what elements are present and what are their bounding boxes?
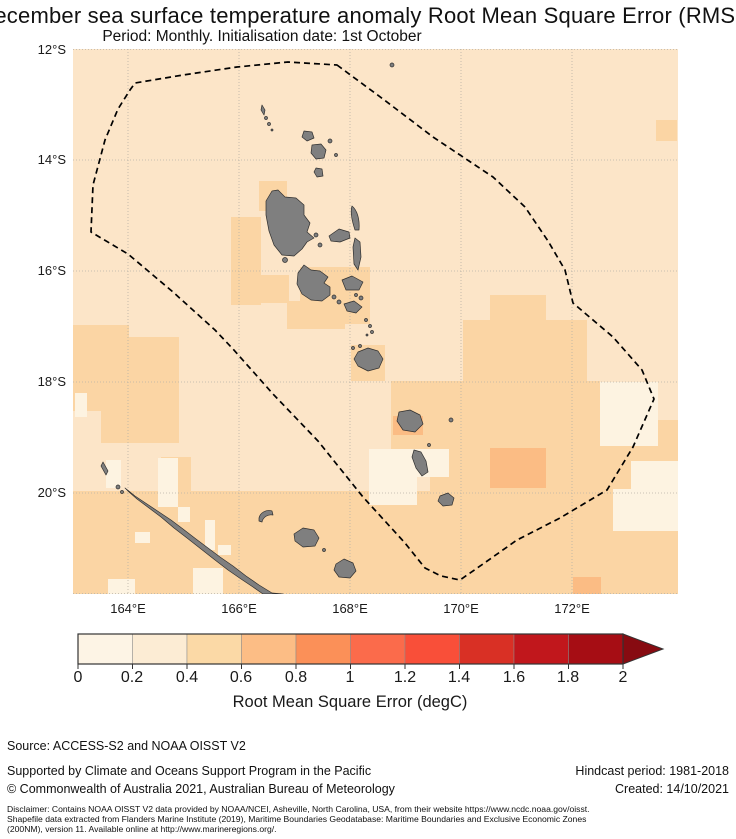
map-canvas — [73, 49, 678, 594]
colorbar-seg-8 — [460, 634, 515, 664]
cb-tick-12: 1.2 — [385, 669, 425, 687]
island-dot — [359, 345, 362, 348]
colorbar-seg-6 — [351, 634, 406, 664]
cb-tick-14: 1.4 — [439, 669, 479, 687]
figure-root: { "title": { "line1": "December sea surf… — [0, 0, 736, 839]
disclaimer-line-2: Shapefile data extracted from Flanders M… — [7, 814, 590, 824]
copyright-line: © Commonwealth of Australia 2021, Austra… — [7, 782, 395, 796]
lat-tick-16s: 16°S — [0, 263, 66, 279]
disclaimer-line-3: (200NM), version 11. Available online at… — [7, 824, 590, 834]
cb-tick-02: 0.2 — [112, 669, 152, 687]
colorbar-seg-10 — [569, 634, 624, 664]
disclaimer-text: Disclaimer: Contains NOAA OISST V2 data … — [7, 804, 590, 834]
lon-tick-168e: 168°E — [320, 601, 380, 616]
lat-tick-18s: 18°S — [0, 374, 66, 390]
colorbar-seg-1 — [78, 634, 133, 664]
island-dot — [371, 331, 374, 334]
island-dot — [265, 117, 268, 120]
cb-tick-1: 1 — [330, 669, 370, 687]
cb-tick-16: 1.6 — [494, 669, 534, 687]
colorbar-segments — [78, 634, 623, 664]
colorbar-seg-5 — [296, 634, 351, 664]
colorbar — [0, 630, 736, 672]
island-dot — [116, 485, 120, 489]
lon-tick-166e: 166°E — [209, 601, 269, 616]
island-dot — [332, 295, 336, 299]
island-dot — [337, 300, 341, 304]
colorbar-seg-7 — [405, 634, 460, 664]
rmse-map — [73, 49, 678, 594]
island-dot — [365, 319, 368, 322]
source-line: Source: ACCESS-S2 and NOAA OISST V2 — [7, 739, 246, 753]
supported-line: Supported by Climate and Oceans Support … — [7, 764, 371, 778]
island-malo — [283, 258, 288, 263]
cb-tick-18: 1.8 — [548, 669, 588, 687]
colorbar-seg-9 — [514, 634, 569, 664]
lon-tick-164e: 164°E — [98, 601, 158, 616]
island-dot — [271, 129, 273, 131]
island-paama — [355, 294, 358, 297]
figure-title: December sea surface temperature anomaly… — [0, 3, 736, 29]
figure-subtitle: Period: Monthly. Initialisation date: 1s… — [102, 28, 421, 46]
island-dot — [314, 233, 318, 237]
hindcast-period: Hindcast period: 1981-2018 — [575, 764, 729, 778]
island-lopevi — [359, 296, 363, 300]
island-dot — [335, 154, 338, 157]
island-dot — [366, 334, 368, 336]
island-aniwa — [428, 444, 431, 447]
cb-tick-06: 0.6 — [221, 669, 261, 687]
island-dot — [318, 243, 322, 247]
island-dot — [369, 325, 372, 328]
lat-tick-12s: 12°S — [0, 42, 66, 58]
colorbar-seg-2 — [133, 634, 188, 664]
disclaimer-line-1: Disclaimer: Contains NOAA OISST V2 data … — [7, 804, 590, 814]
lon-tick-172e: 172°E — [542, 601, 602, 616]
cb-tick-2: 2 — [603, 669, 643, 687]
island-mota — [328, 139, 332, 143]
lon-tick-170e: 170°E — [431, 601, 491, 616]
cb-tick-0: 0 — [58, 669, 98, 687]
island-dot — [121, 491, 124, 494]
island-dot — [352, 347, 355, 350]
colorbar-overflow-arrow — [623, 634, 663, 664]
colorbar-seg-4 — [242, 634, 297, 664]
lat-tick-20s: 20°S — [0, 485, 66, 501]
cb-tick-08: 0.8 — [276, 669, 316, 687]
island-dot — [390, 63, 394, 67]
island-dot — [268, 123, 271, 126]
island-tiga — [323, 549, 326, 552]
created-date: Created: 14/10/2021 — [615, 782, 729, 796]
lat-tick-14s: 14°S — [0, 152, 66, 168]
colorbar-seg-3 — [187, 634, 242, 664]
island-futuna — [449, 418, 453, 422]
colorbar-axis-label: Root Mean Square Error (degC) — [233, 693, 468, 712]
cb-tick-04: 0.4 — [167, 669, 207, 687]
